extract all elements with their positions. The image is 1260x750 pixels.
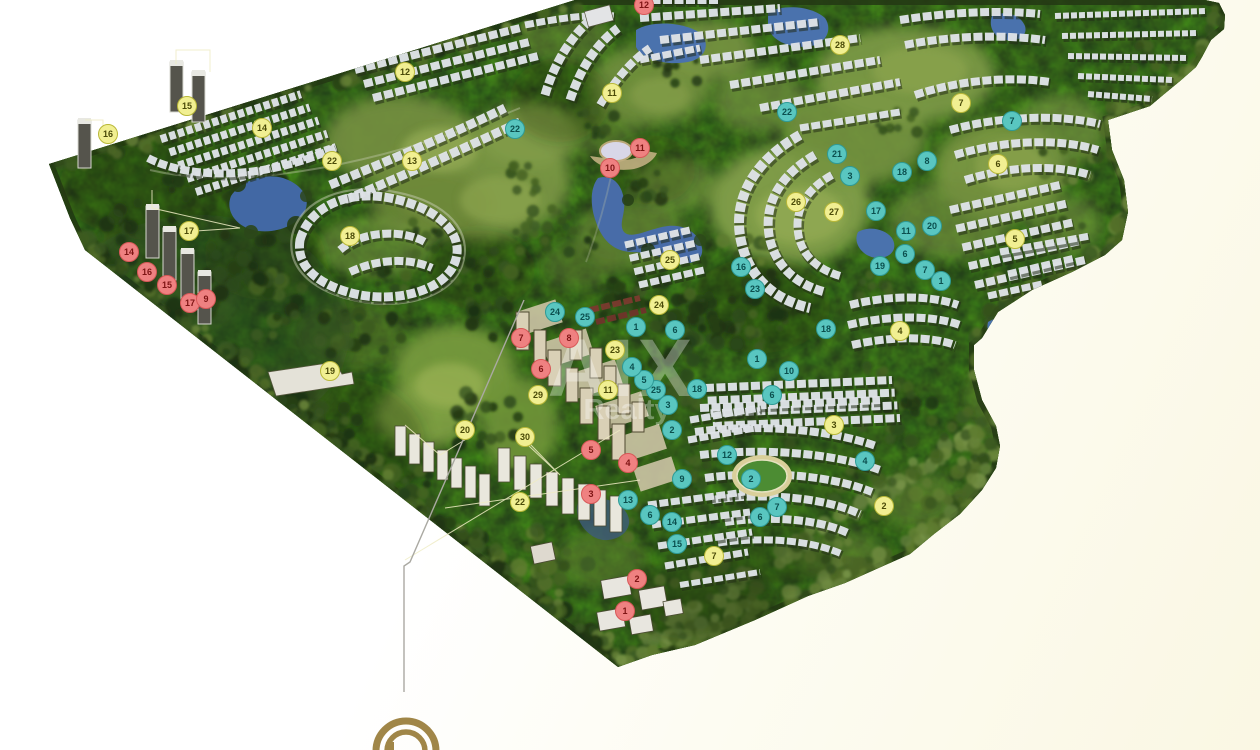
svg-text:22: 22 [510,124,520,134]
svg-text:3: 3 [831,420,836,430]
svg-text:15: 15 [672,539,682,549]
svg-text:9: 9 [679,474,684,484]
svg-text:11: 11 [607,88,617,98]
svg-text:13: 13 [407,156,417,166]
svg-text:22: 22 [515,497,525,507]
svg-text:7: 7 [1009,116,1014,126]
svg-text:17: 17 [184,226,194,236]
svg-text:19: 19 [325,366,335,376]
svg-text:4: 4 [629,362,634,372]
svg-text:18: 18 [692,384,702,394]
svg-text:5: 5 [641,375,646,385]
svg-text:18: 18 [821,324,831,334]
svg-text:4: 4 [862,456,867,466]
svg-text:1: 1 [622,606,627,616]
svg-text:14: 14 [257,123,267,133]
svg-text:2: 2 [634,574,639,584]
svg-text:22: 22 [327,156,337,166]
svg-text:27: 27 [829,207,839,217]
svg-text:6: 6 [757,512,762,522]
svg-text:6: 6 [647,510,652,520]
svg-text:15: 15 [182,101,192,111]
svg-text:14: 14 [124,247,134,257]
svg-text:11: 11 [603,385,613,395]
svg-text:2: 2 [669,425,674,435]
svg-text:7: 7 [711,551,716,561]
svg-text:13: 13 [623,495,633,505]
svg-text:6: 6 [672,325,677,335]
svg-text:23: 23 [750,284,760,294]
svg-text:14: 14 [667,517,677,527]
svg-text:12: 12 [722,450,732,460]
svg-text:17: 17 [871,206,881,216]
svg-text:6: 6 [538,364,543,374]
svg-text:10: 10 [605,163,615,173]
svg-text:3: 3 [665,400,670,410]
svg-text:5: 5 [1012,234,1017,244]
svg-text:7: 7 [922,265,927,275]
svg-text:1: 1 [938,276,943,286]
svg-text:8: 8 [566,333,571,343]
svg-text:9: 9 [203,294,208,304]
svg-text:7: 7 [518,333,523,343]
svg-text:19: 19 [875,261,885,271]
svg-text:22: 22 [782,107,792,117]
svg-text:3: 3 [588,489,593,499]
svg-text:4: 4 [625,458,630,468]
svg-text:4: 4 [897,326,902,336]
svg-text:2: 2 [748,474,753,484]
svg-text:23: 23 [610,345,620,355]
svg-text:8: 8 [924,156,929,166]
svg-text:15: 15 [162,280,172,290]
svg-text:25: 25 [580,312,590,322]
svg-text:26: 26 [791,197,801,207]
svg-text:3: 3 [847,171,852,181]
svg-text:7: 7 [774,502,779,512]
svg-text:10: 10 [784,366,794,376]
svg-text:25: 25 [651,385,661,395]
svg-text:20: 20 [460,425,470,435]
svg-text:1: 1 [754,354,759,364]
svg-text:1: 1 [633,322,638,332]
svg-text:6: 6 [769,390,774,400]
svg-text:24: 24 [550,307,560,317]
svg-text:21: 21 [832,149,842,159]
svg-text:29: 29 [533,390,543,400]
svg-text:5: 5 [588,445,593,455]
svg-text:7: 7 [958,98,963,108]
svg-text:30: 30 [520,432,530,442]
svg-text:16: 16 [103,129,113,139]
svg-text:20: 20 [927,221,937,231]
svg-text:16: 16 [736,262,746,272]
svg-text:17: 17 [185,298,195,308]
svg-text:12: 12 [639,0,649,10]
svg-text:28: 28 [835,40,845,50]
svg-text:11: 11 [901,226,911,236]
svg-text:11: 11 [635,143,645,153]
svg-text:18: 18 [897,167,907,177]
svg-text:24: 24 [654,300,664,310]
svg-text:25: 25 [665,255,675,265]
svg-text:2: 2 [881,501,886,511]
svg-text:6: 6 [902,249,907,259]
svg-text:18: 18 [345,231,355,241]
svg-text:6: 6 [995,159,1000,169]
svg-text:16: 16 [142,267,152,277]
svg-text:12: 12 [400,67,410,77]
